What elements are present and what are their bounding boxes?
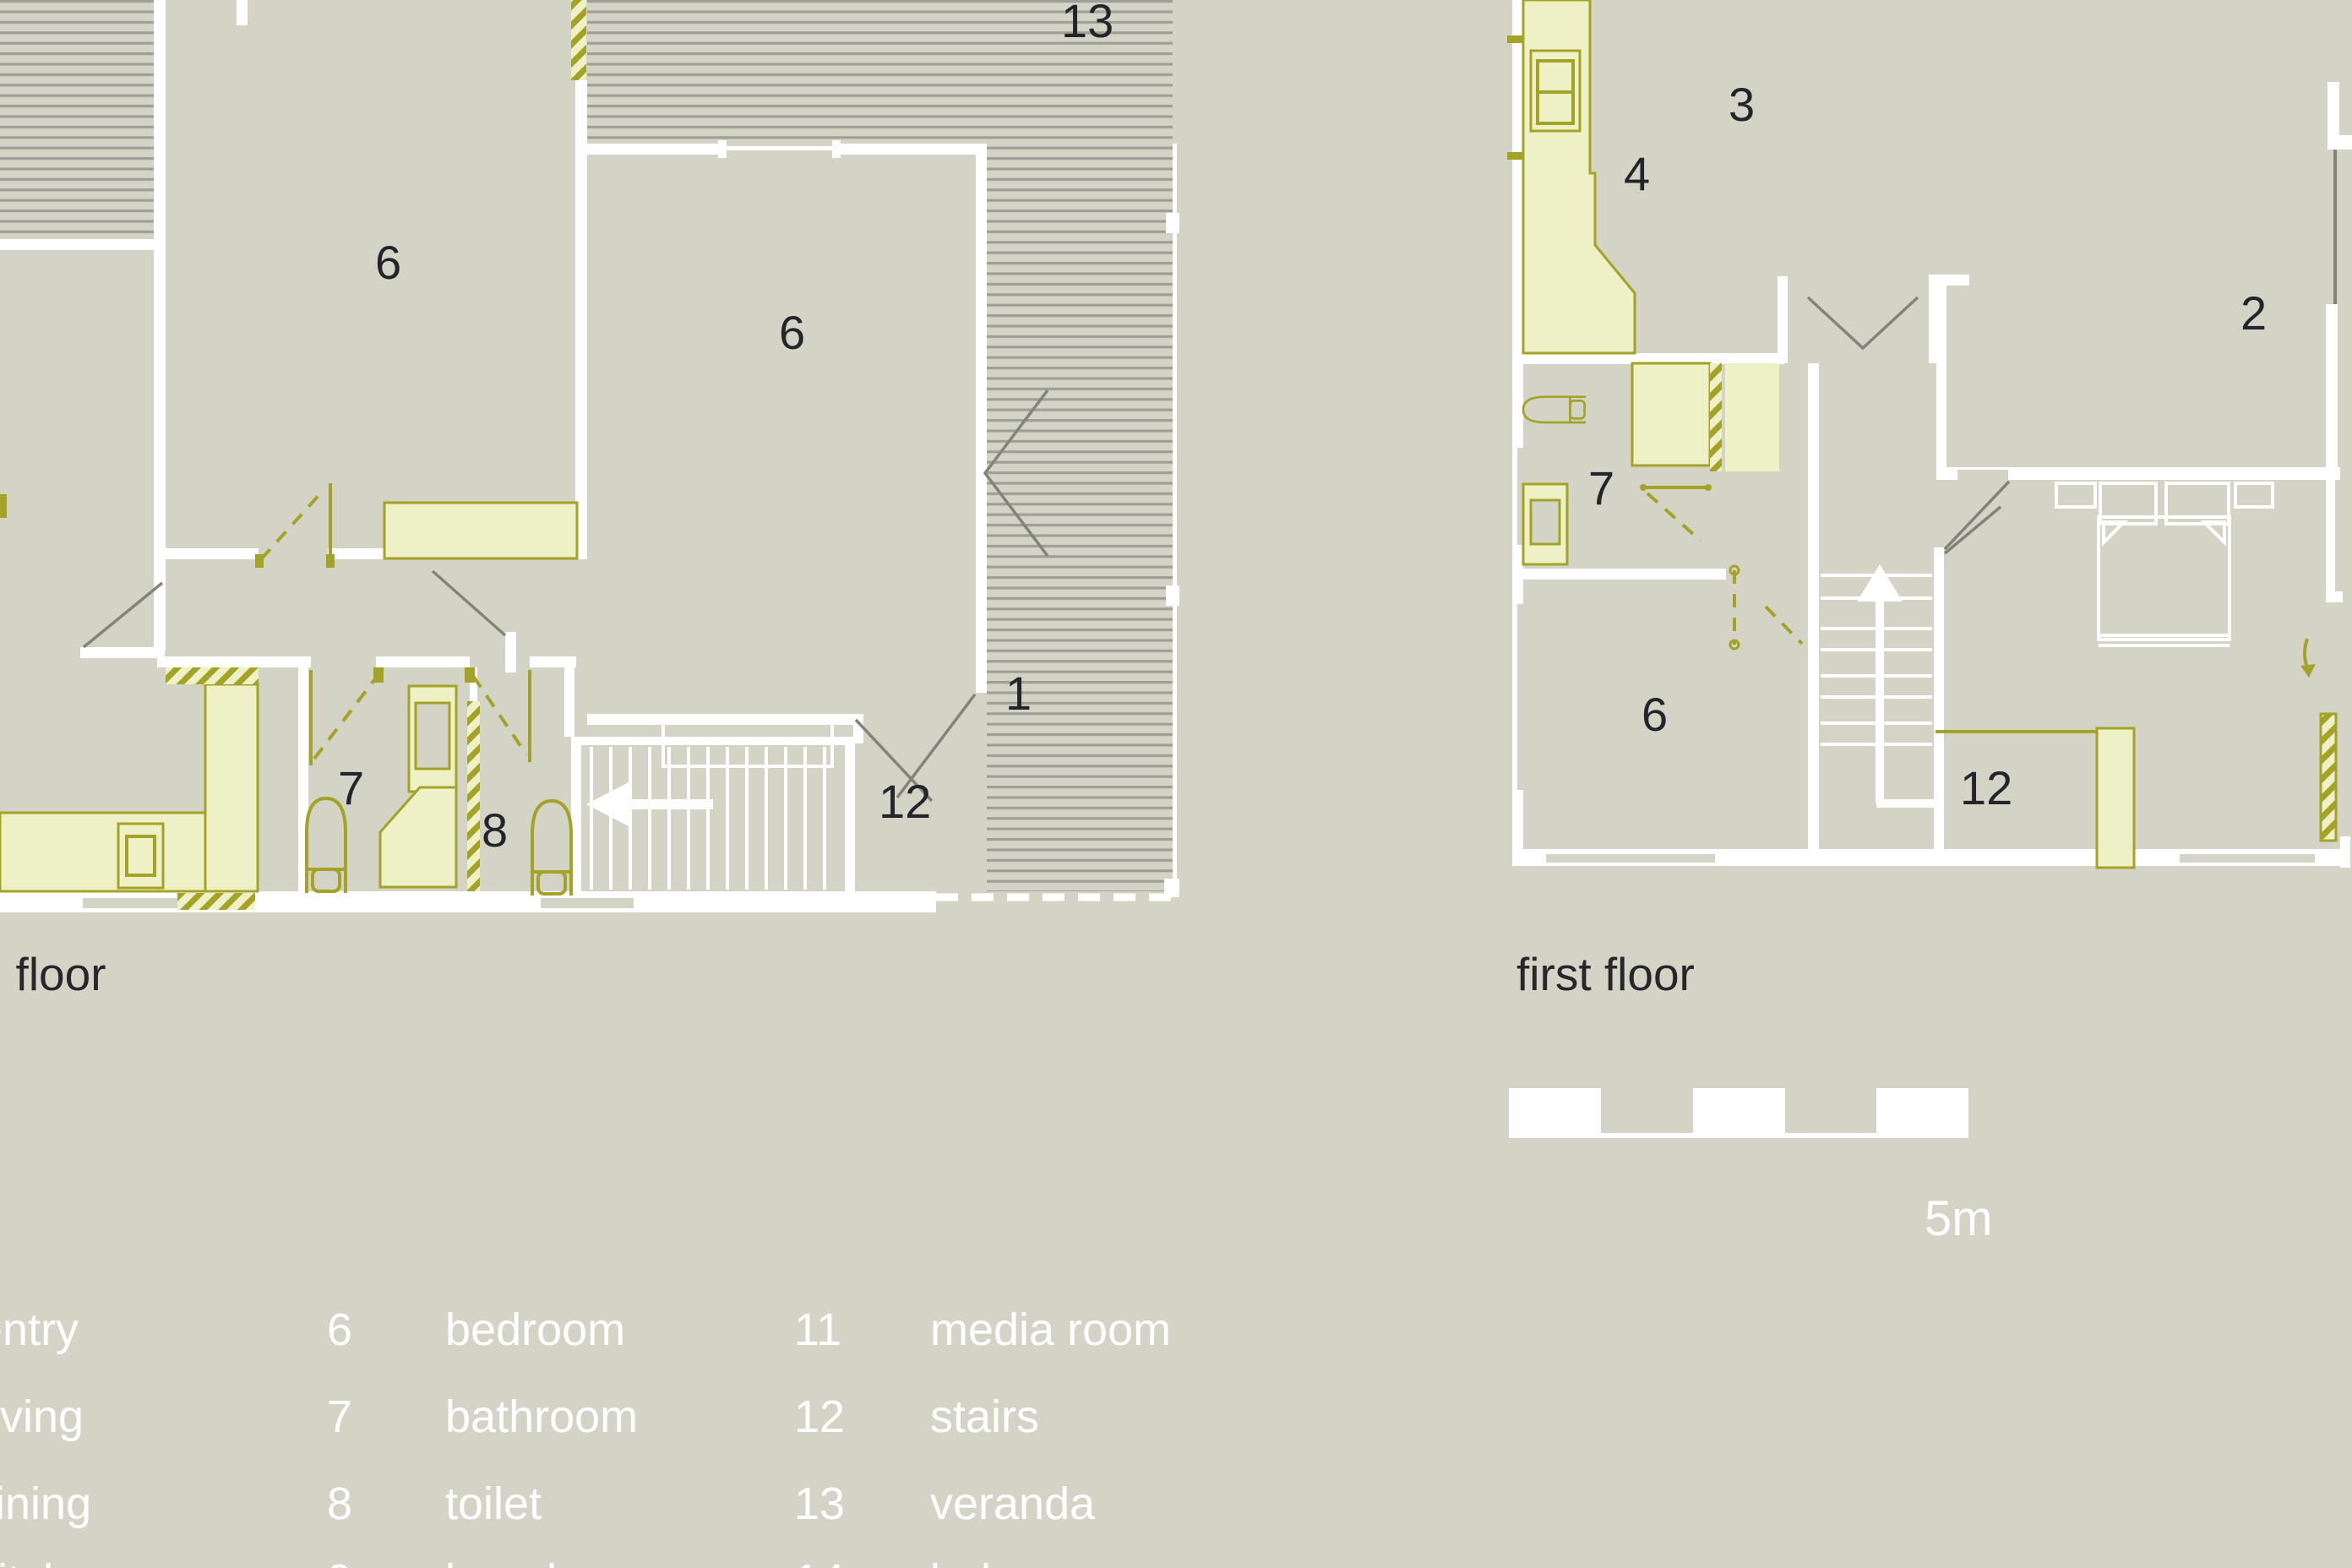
legend-label: kitchen	[0, 1555, 119, 1568]
first-floor-title: first floor	[1516, 948, 1695, 1000]
ground-stairs	[571, 737, 855, 891]
bed	[2099, 517, 2229, 645]
toilet-icon	[532, 801, 571, 896]
room-label-kitchen: 4	[1624, 147, 1650, 200]
room-label-entry: 1	[1005, 667, 1032, 720]
first-stairs	[1821, 482, 2009, 808]
legend-label: entry	[0, 1304, 79, 1355]
room-label-toilet: 8	[482, 803, 508, 857]
legend-num: 13	[794, 1478, 845, 1529]
shower	[380, 787, 456, 887]
legend-label: laundry	[445, 1555, 595, 1568]
legend-label: balcony	[930, 1555, 1087, 1568]
legend-num: 6	[327, 1304, 352, 1355]
room-label-bedroom: 6	[375, 236, 401, 289]
first-bathroom-fittings	[1523, 363, 1802, 649]
legend-num: 7	[327, 1391, 352, 1442]
kitchen-counter	[1523, 0, 1635, 353]
legend-label: dining	[0, 1478, 91, 1529]
first-floor-plan: 3 4 2 7 6 12	[1507, 0, 2352, 868]
room-label-stairs: 12	[1960, 761, 2012, 814]
toilet-icon	[1523, 397, 1586, 422]
legend-label: bedroom	[445, 1304, 625, 1355]
scale-label: 5m	[1925, 1191, 1993, 1246]
legend: 1 entry 2 living 3 dining 4 kitchen 6 be…	[0, 1304, 1171, 1568]
scale-bar: 5m	[1509, 1088, 1993, 1246]
legend-label: stairs	[930, 1391, 1039, 1442]
room-label-dining: 3	[1729, 78, 1755, 131]
room-label-stairs: 12	[879, 775, 931, 828]
room-label-bedroom: 6	[1641, 688, 1668, 741]
legend-num: 11	[794, 1304, 841, 1355]
double-door-symbol	[1808, 297, 1918, 348]
legend-label: toilet	[445, 1478, 542, 1529]
hatched-post	[571, 0, 586, 80]
floor-plan-drawing: 13 6 6 1 7 8 12	[0, 0, 2352, 1568]
kitchen-counters	[0, 667, 259, 910]
room-label-bathroom: 7	[1588, 461, 1614, 514]
stair-direction-arrow	[1857, 564, 1903, 602]
room-label-veranda: 13	[1061, 0, 1113, 47]
legend-num: 14	[794, 1555, 845, 1568]
legend-num: 12	[794, 1391, 845, 1442]
ground-floor-title: ground floor	[0, 948, 106, 1000]
room-label-bathroom: 7	[338, 761, 364, 814]
wardrobe	[384, 503, 577, 558]
legend-label: media room	[930, 1304, 1171, 1355]
room-label-bedroom: 6	[779, 306, 805, 359]
floor-plan-sheet: 13 6 6 1 7 8 12	[0, 0, 2352, 1568]
legend-label: bathroom	[445, 1391, 638, 1442]
legend-num: 9	[327, 1555, 352, 1568]
legend-label: veranda	[930, 1478, 1096, 1529]
sliding-door	[2300, 639, 2336, 841]
ground-floor-plan: 13 6 6 1 7 8 12	[0, 0, 1179, 912]
legend-num: 8	[327, 1478, 352, 1529]
legend-label: living	[0, 1391, 84, 1442]
room-label-living: 2	[2240, 286, 2267, 340]
